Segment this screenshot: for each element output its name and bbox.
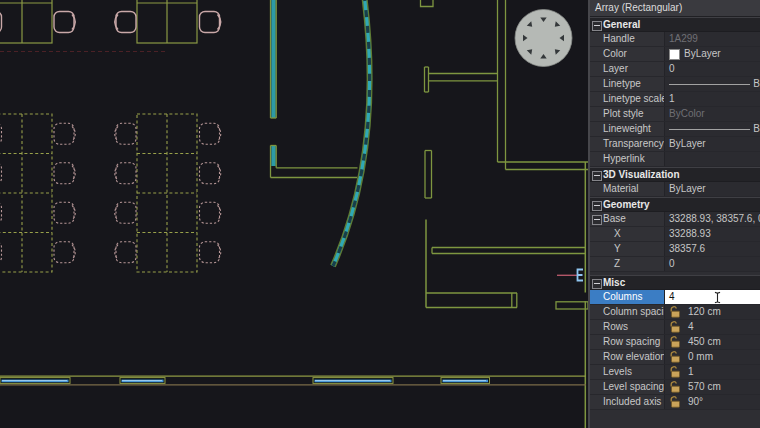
prop-row-lineweight[interactable]: Lineweight B: [590, 122, 760, 137]
prop-row-linetype-scale[interactable]: Linetype scale 1: [590, 92, 760, 107]
prop-row-color[interactable]: Color ByLayer: [590, 47, 760, 62]
section-header-misc[interactable]: Misc: [590, 275, 760, 290]
unlock-icon[interactable]: [669, 336, 681, 348]
unlock-icon[interactable]: [669, 351, 681, 363]
prop-row-layer[interactable]: Layer 0: [590, 62, 760, 77]
section-header-3d-visualization[interactable]: 3D Visualization: [590, 167, 760, 182]
linetype-sample: [669, 84, 750, 85]
panel-title: Array (Rectangular): [590, 0, 760, 17]
round-column[interactable]: [515, 10, 572, 67]
unlock-icon[interactable]: [669, 306, 681, 318]
prop-row-base-z[interactable]: Z 0: [590, 257, 760, 272]
prop-row-base-y[interactable]: Y 38357.6: [590, 242, 760, 257]
collapse-icon[interactable]: [592, 21, 602, 31]
prop-row-plot-style[interactable]: Plot style ByColor: [590, 107, 760, 122]
prop-row-handle[interactable]: Handle 1A299: [590, 32, 760, 47]
collapse-icon[interactable]: [592, 279, 602, 289]
unlock-icon[interactable]: [669, 321, 681, 333]
interior-walls[interactable]: [421, 0, 589, 428]
lineweight-sample: [669, 129, 750, 130]
source-desks[interactable]: [0, 0, 221, 43]
cad-application-window: Array (Rectangular) General Handle 1A299…: [0, 0, 760, 428]
section-header-geometry[interactable]: Geometry: [590, 197, 760, 212]
prop-row-rows[interactable]: Rows 4: [590, 320, 760, 335]
properties-panel: Array (Rectangular) General Handle 1A299…: [588, 0, 760, 428]
section-header-general[interactable]: General: [590, 17, 760, 32]
collapse-icon[interactable]: [592, 171, 602, 181]
prop-row-base[interactable]: Base 33288.93, 38357.6, 0: [590, 212, 760, 227]
prop-row-row-elevation[interactable]: Row elevation in 0 mm: [590, 350, 760, 365]
prop-row-row-spacing[interactable]: Row spacing 450 cm: [590, 335, 760, 350]
text-cursor-icon: [713, 291, 722, 304]
grip-point: [578, 270, 584, 281]
prop-row-transparency[interactable]: Transparency ByLayer: [590, 137, 760, 152]
prop-row-level-spacing[interactable]: Level spacing 570 cm: [590, 380, 760, 395]
curved-glass-wall[interactable]: [333, 0, 370, 266]
prop-row-included-axis-angle[interactable]: Included axis ang 90°: [590, 395, 760, 410]
unlock-icon[interactable]: [669, 366, 681, 378]
prop-row-linetype[interactable]: Linetype B: [590, 77, 760, 92]
selected-line-with-grip[interactable]: [557, 270, 583, 281]
drawing-canvas[interactable]: [0, 0, 588, 428]
array-preview-desks[interactable]: [0, 114, 197, 272]
prop-row-base-x[interactable]: X 33288.93: [590, 227, 760, 242]
collapse-icon[interactable]: [592, 201, 602, 211]
prop-row-column-spacing[interactable]: Column spacing 120 cm: [590, 305, 760, 320]
color-swatch: [669, 49, 680, 60]
prop-row-columns[interactable]: Columns 4: [590, 290, 760, 305]
columns-edit-field[interactable]: 4: [664, 290, 760, 304]
prop-row-material[interactable]: Material ByLayer: [590, 182, 760, 197]
glazed-partition-wall[interactable]: [271, 0, 358, 178]
prop-row-hyperlink[interactable]: Hyperlink: [590, 152, 760, 167]
unlock-icon[interactable]: [669, 381, 681, 393]
unlock-icon[interactable]: [669, 396, 681, 408]
prop-row-levels[interactable]: Levels 1: [590, 365, 760, 380]
window-segments: [0, 378, 490, 384]
collapse-icon[interactable]: [592, 215, 602, 225]
window-wall[interactable]: [0, 376, 586, 385]
